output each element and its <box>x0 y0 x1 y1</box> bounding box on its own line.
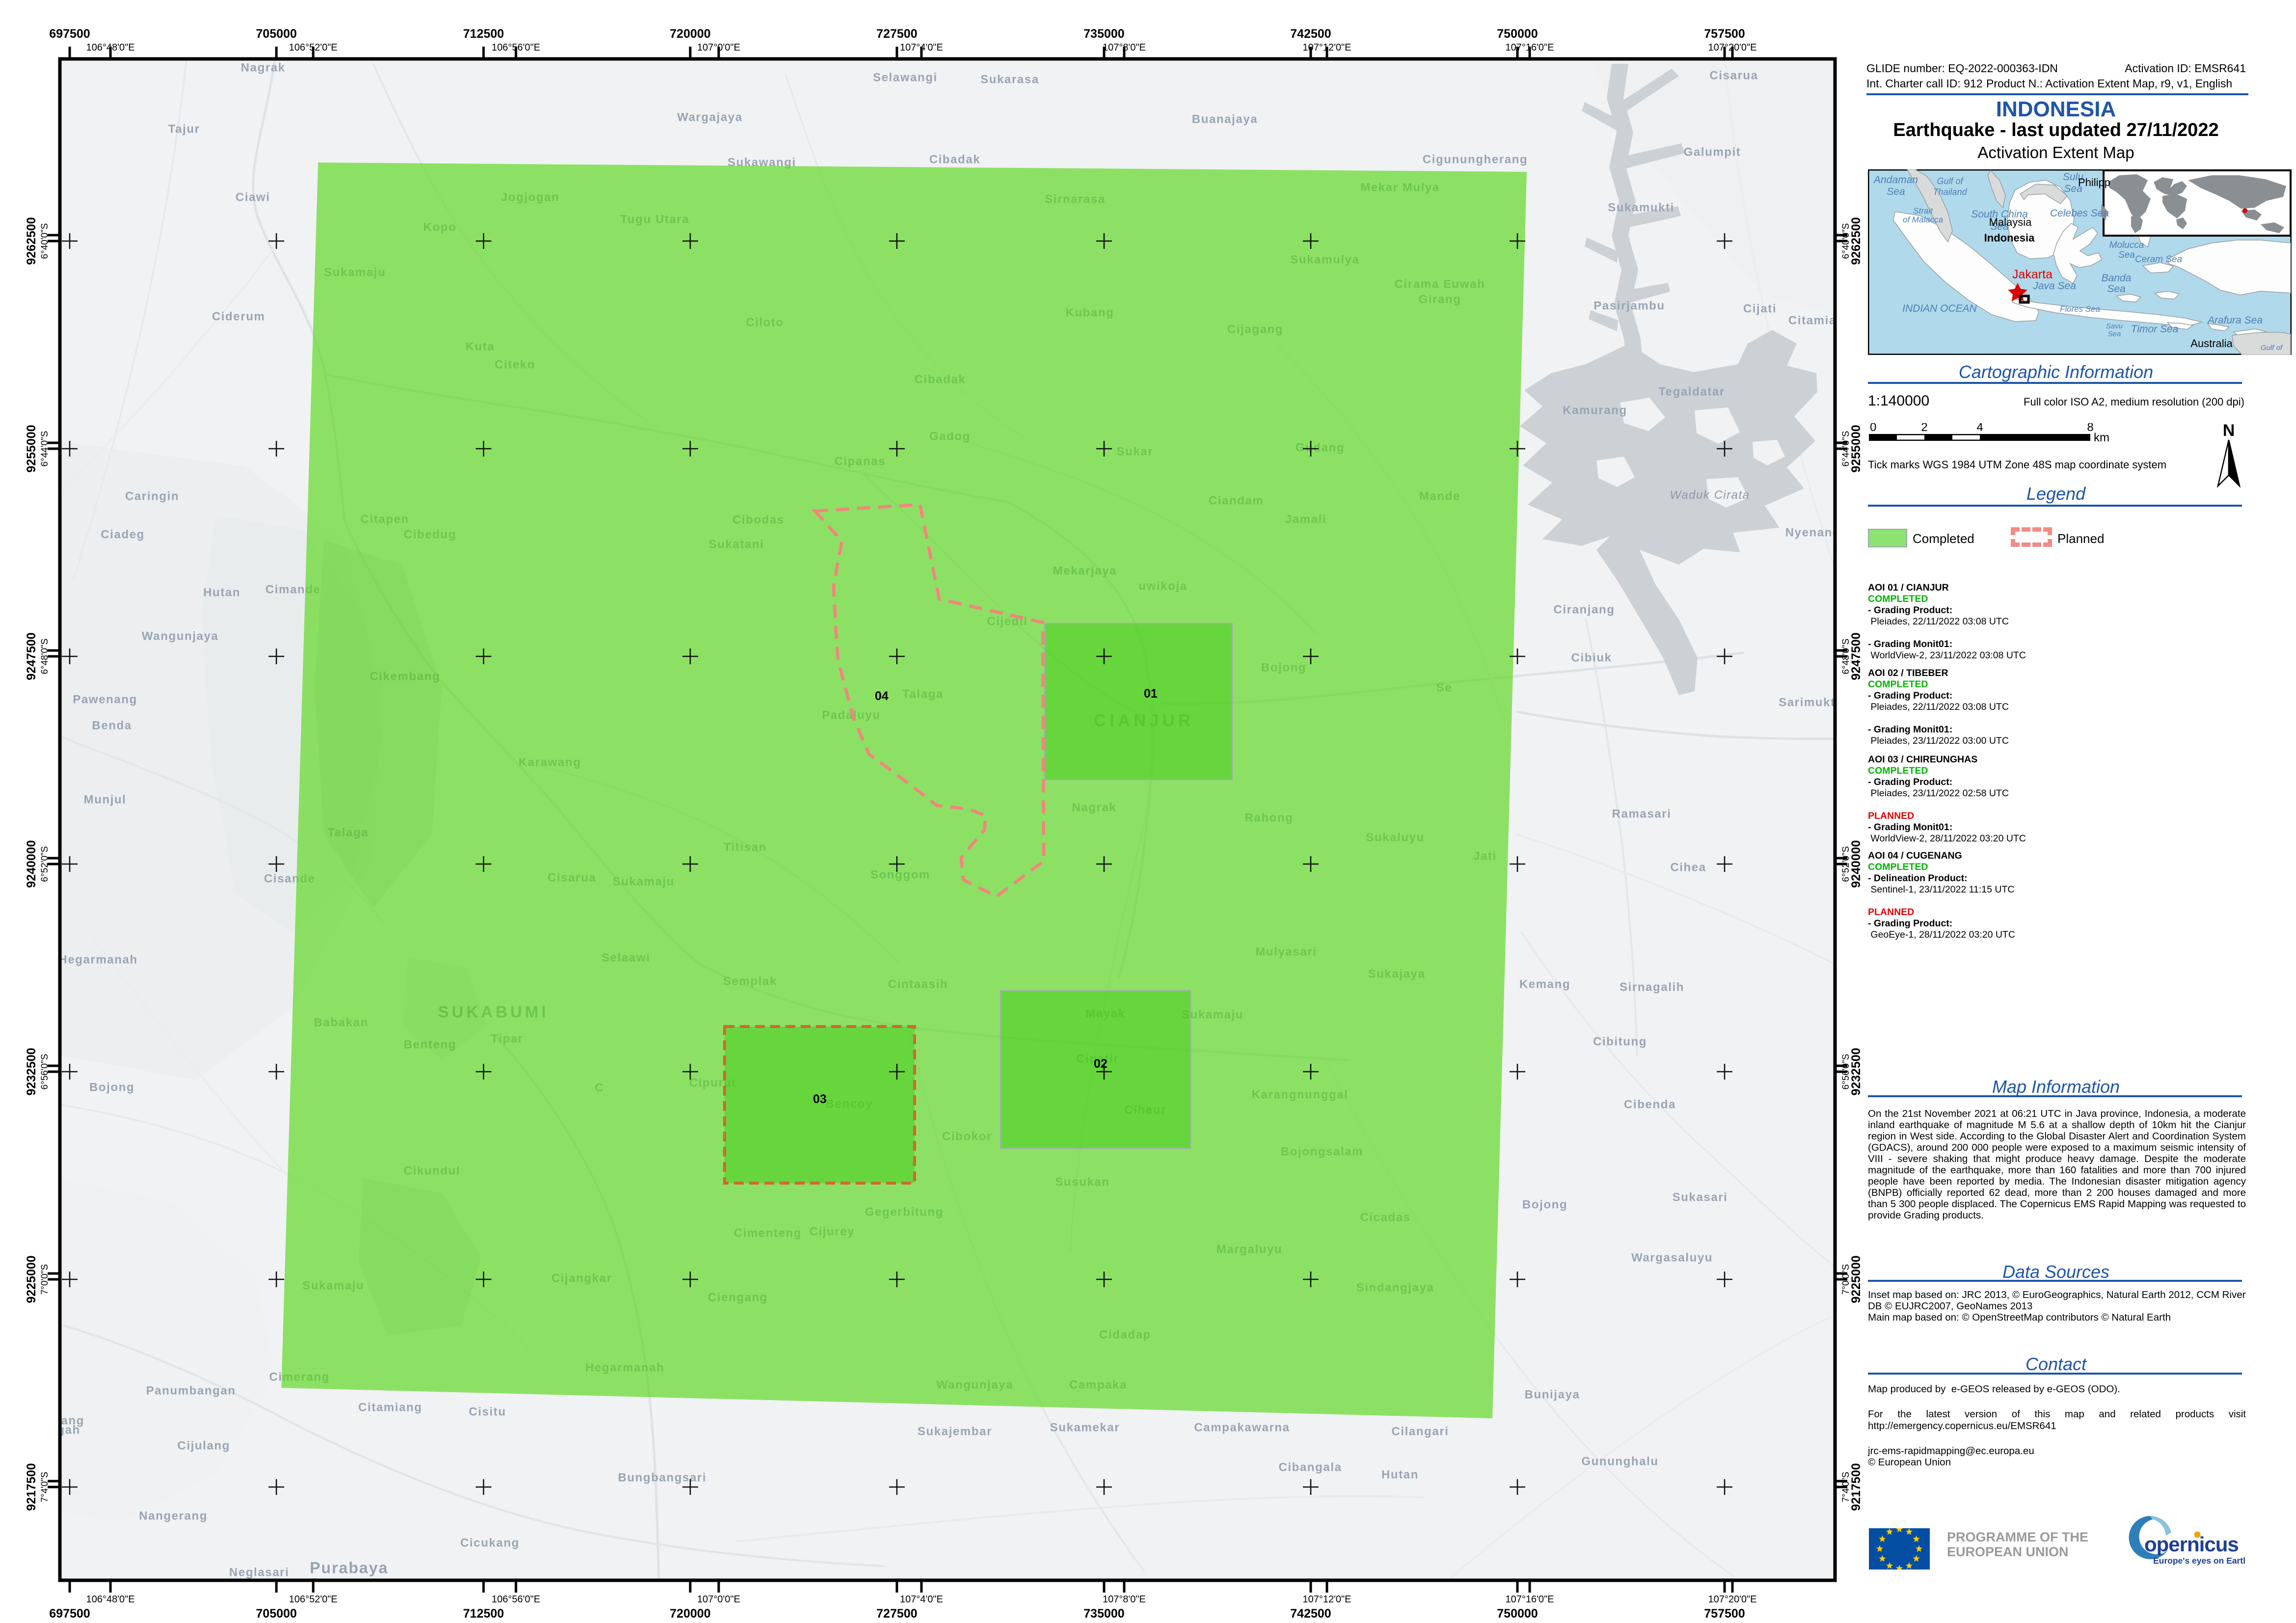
svg-text:Wargasaluyu: Wargasaluyu <box>1631 1251 1713 1264</box>
svg-text:697500: 697500 <box>49 27 90 41</box>
svg-text:Ciderum: Ciderum <box>212 310 266 323</box>
svg-text:Celebes Sea: Celebes Sea <box>2050 208 2109 219</box>
svg-text:Cibitung: Cibitung <box>1593 1035 1647 1048</box>
svg-text:4: 4 <box>1976 423 1983 434</box>
svg-text:107°20'0"E: 107°20'0"E <box>1708 42 1757 53</box>
svg-text:Molucca: Molucca <box>2109 240 2144 250</box>
svg-text:735000: 735000 <box>1083 1607 1124 1621</box>
svg-text:7°0'0"S: 7°0'0"S <box>40 1264 50 1295</box>
svg-text:9255000: 9255000 <box>25 425 38 472</box>
svg-text:107°0'0"E: 107°0'0"E <box>697 42 740 53</box>
svg-text:Strait: Strait <box>1913 206 1933 216</box>
svg-text:04: 04 <box>875 689 889 703</box>
svg-text:Gununghalu: Gununghalu <box>1581 1455 1658 1468</box>
svg-text:03: 03 <box>813 1092 827 1106</box>
svg-text:Gulf of: Gulf of <box>1937 176 1964 186</box>
svg-text:Ceram Sea: Ceram Sea <box>2135 254 2182 265</box>
svg-text:Kemang: Kemang <box>1519 977 1570 991</box>
svg-text:Sirnagalih: Sirnagalih <box>1620 980 1684 994</box>
svg-text:Jakarta: Jakarta <box>2012 268 2053 281</box>
svg-text:Sea: Sea <box>1887 186 1905 197</box>
svg-text:107°20'0"E: 107°20'0"E <box>1708 1594 1757 1605</box>
svg-text:Philipp: Philipp <box>2078 176 2110 189</box>
svg-text:Gulf of: Gulf of <box>2261 344 2283 352</box>
svg-text:107°16'0"E: 107°16'0"E <box>1506 1594 1554 1605</box>
svg-text:6°44'0"S: 6°44'0"S <box>40 431 50 467</box>
svg-text:106°48'0"E: 106°48'0"E <box>86 1594 135 1605</box>
svg-text:6°48'0"S: 6°48'0"S <box>40 639 50 675</box>
svg-text:Purabaya: Purabaya <box>310 1559 388 1576</box>
svg-text:Ciadeg: Ciadeg <box>101 528 145 541</box>
svg-text:Nangerang: Nangerang <box>139 1509 208 1522</box>
svg-text:107°4'0"E: 107°4'0"E <box>900 42 943 53</box>
svg-text:Tajur: Tajur <box>168 122 200 135</box>
svg-text:106°52'0"E: 106°52'0"E <box>289 1594 338 1605</box>
svg-text:6°52'0"S: 6°52'0"S <box>40 846 50 882</box>
svg-text:Campakawarna: Campakawarna <box>1194 1421 1290 1434</box>
svg-text:Cisarua: Cisarua <box>1709 69 1758 82</box>
svg-text:Indonesia: Indonesia <box>1984 232 2035 244</box>
svg-text:Cibangala: Cibangala <box>1278 1461 1342 1474</box>
svg-text:757500: 757500 <box>1704 27 1745 41</box>
svg-text:Hutan: Hutan <box>203 586 241 599</box>
svg-text:9217500: 9217500 <box>25 1463 38 1511</box>
svg-text:107°8'0"E: 107°8'0"E <box>1103 42 1146 53</box>
svg-text:106°56'0"E: 106°56'0"E <box>492 1594 540 1605</box>
svg-text:106°56'0"E: 106°56'0"E <box>492 42 540 53</box>
svg-text:Cicukang: Cicukang <box>460 1536 520 1549</box>
svg-text:106°48'0"E: 106°48'0"E <box>86 42 135 53</box>
svg-text:720000: 720000 <box>670 27 710 41</box>
svg-text:INDIAN OCEAN: INDIAN OCEAN <box>1902 303 1977 314</box>
svg-text:Neglasari: Neglasari <box>229 1566 289 1579</box>
svg-text:Sukasari: Sukasari <box>1673 1190 1728 1204</box>
svg-text:km: km <box>2094 431 2109 444</box>
svg-text:757500: 757500 <box>1704 1607 1745 1621</box>
svg-text:107°8'0"E: 107°8'0"E <box>1103 1594 1146 1605</box>
svg-text:Andaman: Andaman <box>1873 174 1918 186</box>
svg-text:Cibiuk: Cibiuk <box>1571 651 1612 664</box>
svg-text:Sukarasa: Sukarasa <box>980 73 1039 86</box>
svg-text:106°52'0"E: 106°52'0"E <box>289 42 338 53</box>
svg-text:opernicus: opernicus <box>2144 1533 2239 1556</box>
svg-text:750000: 750000 <box>1497 27 1538 41</box>
svg-text:Bojong: Bojong <box>89 1081 135 1094</box>
svg-text:712500: 712500 <box>463 27 504 41</box>
svg-text:Bojong: Bojong <box>1522 1198 1567 1211</box>
svg-text:Galumpit: Galumpit <box>1684 145 1741 159</box>
svg-text:Cijati: Cijati <box>1743 302 1777 315</box>
svg-text:Ciranjang: Ciranjang <box>1553 603 1615 616</box>
svg-text:6°44'0"S: 6°44'0"S <box>1841 431 1851 467</box>
svg-text:Sarimukti: Sarimukti <box>1779 696 1839 709</box>
svg-text:Nagrak: Nagrak <box>241 61 286 74</box>
svg-text:107°12'0"E: 107°12'0"E <box>1303 1594 1351 1605</box>
svg-text:712500: 712500 <box>463 1607 504 1621</box>
svg-text:Nyenang: Nyenang <box>1785 526 1841 539</box>
svg-text:N: N <box>2223 421 2235 440</box>
svg-text:Sea: Sea <box>2108 330 2121 338</box>
svg-text:735000: 735000 <box>1083 27 1124 41</box>
svg-text:727500: 727500 <box>876 1607 917 1621</box>
svg-text:Arafura Sea: Arafura Sea <box>2207 315 2263 326</box>
svg-text:Benda: Benda <box>92 719 132 732</box>
svg-text:of Malacca: of Malacca <box>1903 215 1943 224</box>
svg-text:Pasirjambu: Pasirjambu <box>1594 299 1665 312</box>
svg-text:Savu: Savu <box>2106 322 2123 330</box>
svg-text:107°4'0"E: 107°4'0"E <box>900 1594 943 1605</box>
svg-text:Hegarmanah: Hegarmanah <box>58 953 137 966</box>
svg-text:Cibadak: Cibadak <box>929 153 981 166</box>
svg-text:9262500: 9262500 <box>25 217 38 265</box>
svg-text:Cilangari: Cilangari <box>1391 1425 1449 1438</box>
svg-text:Cisitu: Cisitu <box>469 1405 506 1418</box>
svg-text:6°52'0"S: 6°52'0"S <box>1841 846 1851 882</box>
svg-text:Cihea: Cihea <box>1670 861 1706 874</box>
svg-text:Java Sea: Java Sea <box>2032 280 2076 292</box>
svg-text:742500: 742500 <box>1290 1607 1331 1621</box>
svg-text:Sea: Sea <box>2118 250 2135 260</box>
svg-text:705000: 705000 <box>256 1607 297 1621</box>
svg-text:Selawangi: Selawangi <box>873 71 938 84</box>
svg-text:8: 8 <box>2087 423 2093 434</box>
svg-text:Wargajaya: Wargajaya <box>677 110 743 124</box>
svg-text:Caringin: Caringin <box>125 489 179 503</box>
svg-text:705000: 705000 <box>256 27 297 41</box>
svg-text:Cigunungherang: Cigunungherang <box>1423 153 1528 166</box>
svg-text:Thailand: Thailand <box>1933 187 1967 197</box>
svg-text:Waduk Cirata: Waduk Cirata <box>1670 488 1750 502</box>
svg-text:9247500: 9247500 <box>25 632 38 680</box>
svg-text:Munjul: Munjul <box>84 793 127 806</box>
svg-text:Hutan: Hutan <box>1381 1468 1419 1481</box>
svg-text:Ciawi: Ciawi <box>236 190 270 204</box>
svg-text:Ramasari: Ramasari <box>1612 807 1672 820</box>
svg-text:Buanajaya: Buanajaya <box>1192 112 1258 126</box>
svg-text:750000: 750000 <box>1497 1607 1538 1621</box>
svg-text:01: 01 <box>1144 687 1158 701</box>
svg-text:Pawenang: Pawenang <box>73 693 137 706</box>
svg-text:Citamiang: Citamiang <box>358 1401 422 1414</box>
svg-text:Wangunjaya: Wangunjaya <box>142 629 218 643</box>
svg-text:Europe's eyes on Earth: Europe's eyes on Earth <box>2153 1556 2245 1566</box>
svg-text:Cijulang: Cijulang <box>177 1439 230 1452</box>
svg-text:Sukajembar: Sukajembar <box>918 1425 992 1438</box>
svg-text:6°40'0"S: 6°40'0"S <box>40 223 50 259</box>
svg-text:Timor Sea: Timor Sea <box>2131 324 2179 335</box>
svg-text:6°48'0"S: 6°48'0"S <box>1841 639 1851 675</box>
svg-text:Tegaldatar: Tegaldatar <box>1658 385 1725 398</box>
svg-text:727500: 727500 <box>876 27 917 41</box>
svg-text:7°0'0"S: 7°0'0"S <box>1841 1264 1851 1295</box>
svg-text:697500: 697500 <box>49 1607 90 1621</box>
svg-text:Bunijaya: Bunijaya <box>1525 1388 1580 1401</box>
svg-text:7°4'0"S: 7°4'0"S <box>40 1472 50 1502</box>
svg-text:6°56'0"S: 6°56'0"S <box>1841 1054 1851 1090</box>
svg-text:742500: 742500 <box>1290 27 1331 41</box>
svg-text:9240000: 9240000 <box>25 840 38 888</box>
svg-text:107°16'0"E: 107°16'0"E <box>1506 42 1554 53</box>
svg-text:Banda: Banda <box>2102 272 2132 284</box>
svg-text:Malaysia: Malaysia <box>1989 216 2032 228</box>
svg-text:720000: 720000 <box>670 1607 710 1621</box>
svg-text:Panumbangan: Panumbangan <box>146 1384 236 1397</box>
svg-text:Sukamukti: Sukamukti <box>1608 201 1675 214</box>
svg-text:6°56'0"S: 6°56'0"S <box>40 1054 50 1090</box>
svg-text:0: 0 <box>1870 423 1876 434</box>
svg-text:02: 02 <box>1094 1057 1107 1071</box>
svg-text:7°4'0"S: 7°4'0"S <box>1841 1472 1851 1502</box>
svg-text:9225000: 9225000 <box>25 1255 38 1303</box>
svg-text:6°40'0"S: 6°40'0"S <box>1841 223 1851 259</box>
svg-text:2: 2 <box>1921 423 1927 434</box>
svg-text:Australia: Australia <box>2190 337 2233 350</box>
svg-text:107°0'0"E: 107°0'0"E <box>697 1594 740 1605</box>
svg-text:107°12'0"E: 107°12'0"E <box>1303 42 1351 53</box>
svg-text:Sukamekar: Sukamekar <box>1050 1421 1120 1434</box>
svg-text:9232500: 9232500 <box>25 1048 38 1095</box>
svg-text:Sea: Sea <box>2107 283 2125 295</box>
svg-text:Flores Sea: Flores Sea <box>2060 304 2100 314</box>
svg-text:Kamurang: Kamurang <box>1563 404 1627 417</box>
svg-text:Bungbangsari: Bungbangsari <box>618 1471 707 1484</box>
svg-text:Cibenda: Cibenda <box>1624 1098 1676 1111</box>
